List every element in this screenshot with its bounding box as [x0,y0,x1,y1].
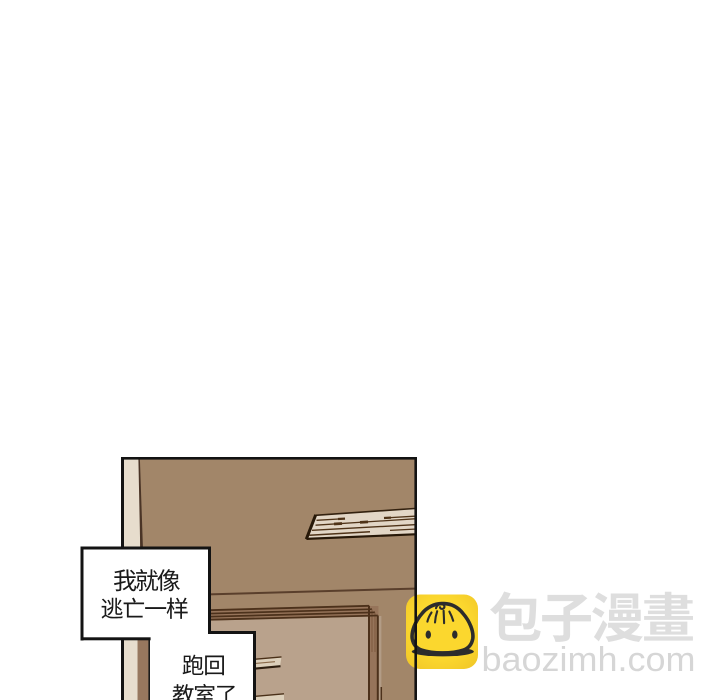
svg-text:baozimh.com: baozimh.com [482,641,696,679]
